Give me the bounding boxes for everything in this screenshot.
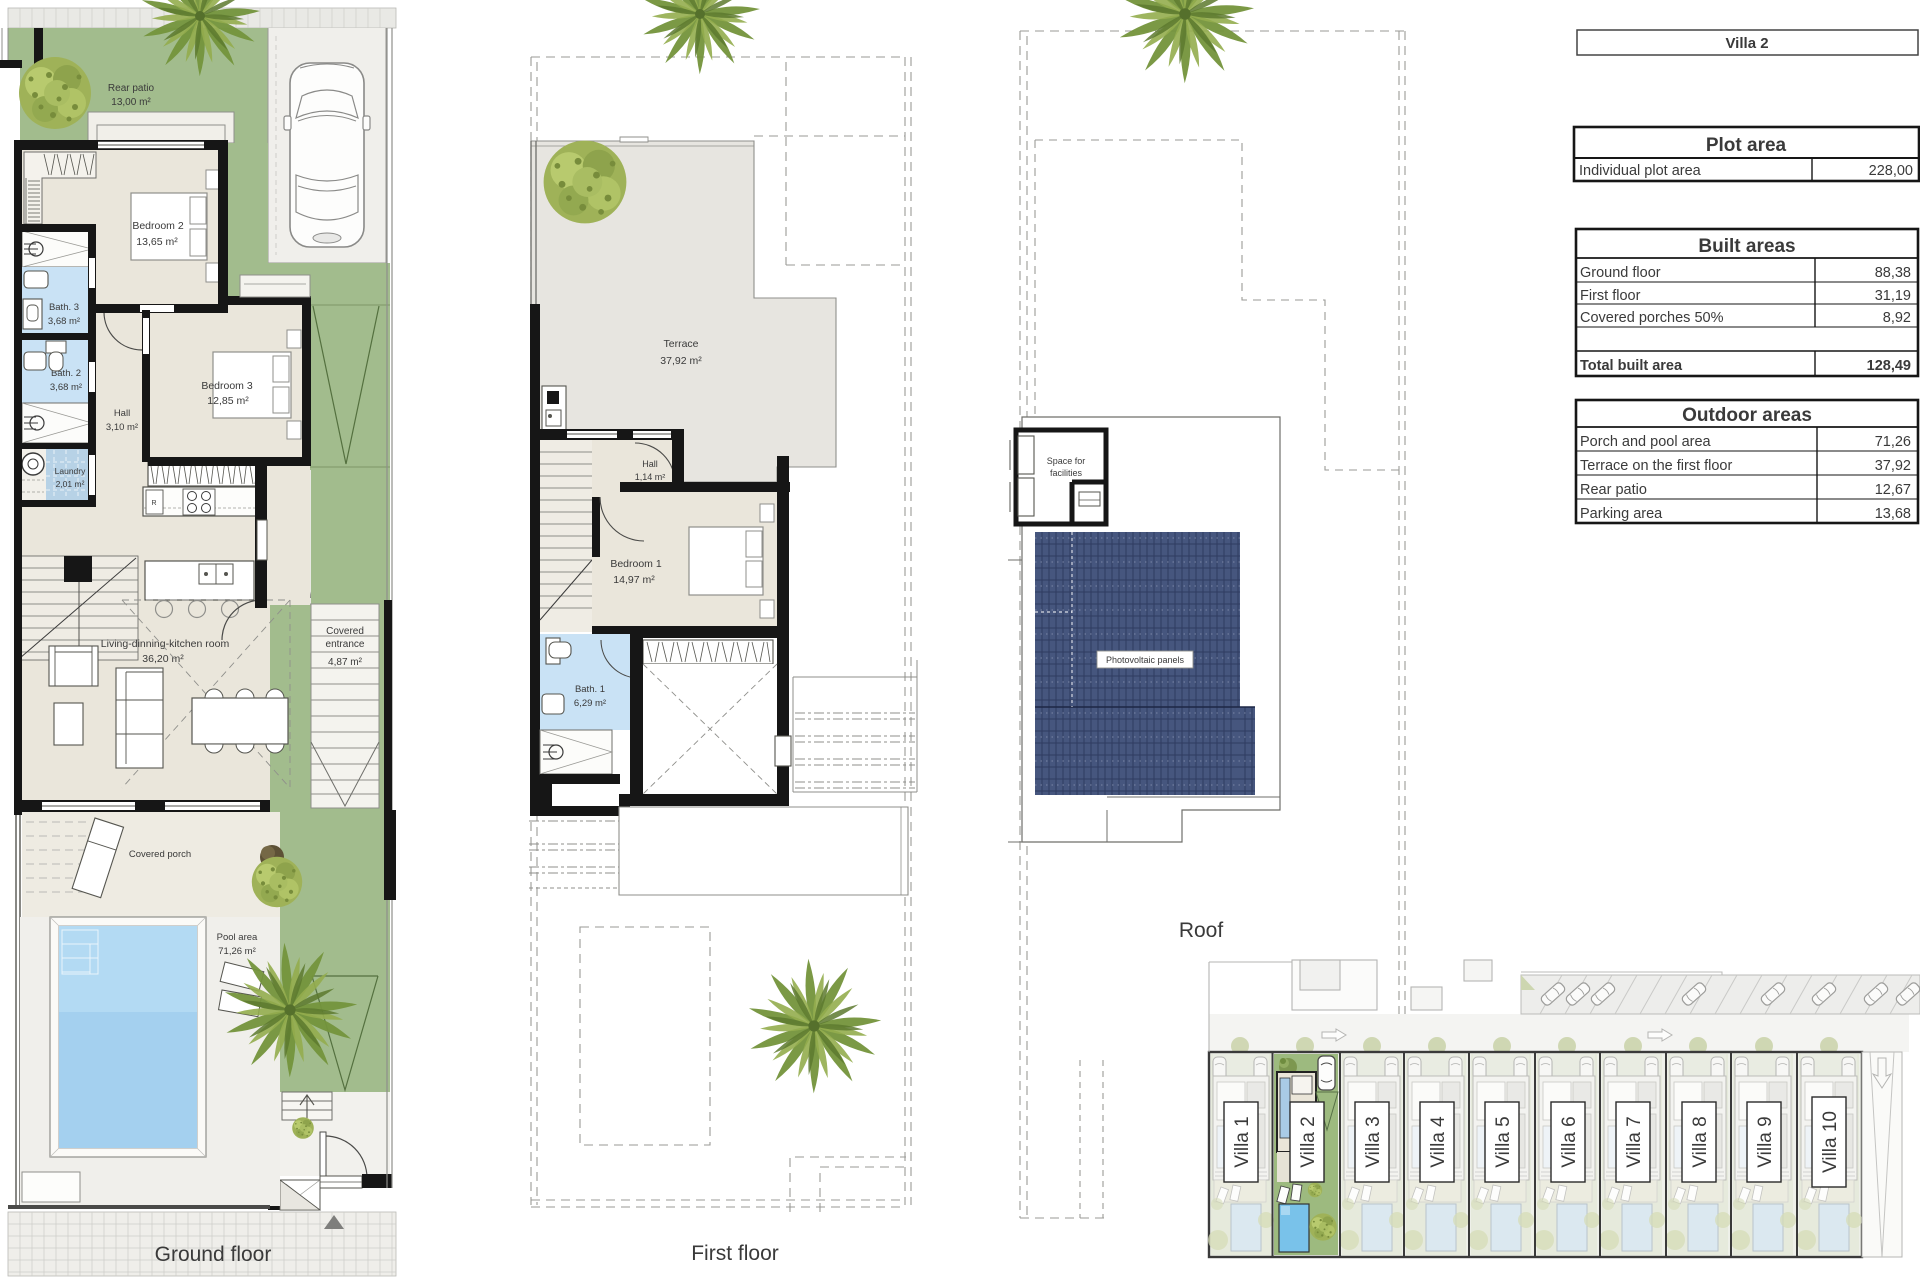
svg-text:Pool area: Pool area	[217, 932, 258, 943]
svg-text:Ground floor: Ground floor	[1580, 265, 1661, 281]
svg-text:71,26: 71,26	[1875, 434, 1911, 450]
svg-text:Villa 8: Villa 8	[1690, 1116, 1711, 1167]
svg-text:Hall: Hall	[114, 408, 130, 419]
svg-text:Villa 7: Villa 7	[1624, 1116, 1645, 1167]
svg-text:Covered porches 50%: Covered porches 50%	[1580, 310, 1724, 326]
svg-text:Rear patio: Rear patio	[1580, 482, 1647, 498]
svg-text:Outdoor areas: Outdoor areas	[1682, 405, 1812, 426]
svg-text:Villa 6: Villa 6	[1559, 1116, 1580, 1167]
svg-text:Terrace on the first floor: Terrace on the first floor	[1580, 458, 1732, 474]
svg-text:Hall: Hall	[642, 459, 658, 469]
svg-text:Built areas: Built areas	[1698, 236, 1795, 257]
svg-text:Villa 4: Villa 4	[1428, 1116, 1449, 1168]
svg-text:Roof: Roof	[1179, 919, 1224, 942]
svg-text:Porch and pool area: Porch and pool area	[1580, 434, 1712, 450]
svg-text:Total built area: Total built area	[1580, 358, 1683, 374]
svg-text:13,65 m²: 13,65 m²	[136, 236, 178, 248]
svg-text:Space for: Space for	[1047, 456, 1086, 466]
svg-text:6,29 m²: 6,29 m²	[574, 698, 606, 709]
svg-text:37,92: 37,92	[1875, 458, 1911, 474]
svg-text:Villa 3: Villa 3	[1363, 1116, 1384, 1167]
svg-text:Covered: Covered	[326, 626, 364, 637]
svg-text:13,00 m²: 13,00 m²	[111, 97, 151, 108]
svg-text:128,49: 128,49	[1867, 358, 1911, 374]
svg-text:Parking area: Parking area	[1580, 506, 1663, 522]
svg-text:facilities: facilities	[1050, 468, 1083, 478]
svg-text:3,68 m²: 3,68 m²	[48, 316, 80, 327]
svg-text:4,87 m²: 4,87 m²	[328, 657, 363, 668]
svg-text:Individual plot area: Individual plot area	[1579, 163, 1702, 179]
svg-text:Covered porch: Covered porch	[129, 849, 191, 860]
svg-text:Villa 5: Villa 5	[1493, 1116, 1514, 1167]
svg-text:Bath. 1: Bath. 1	[575, 684, 605, 695]
svg-text:228,00: 228,00	[1869, 163, 1913, 179]
svg-text:1,14 m²: 1,14 m²	[635, 472, 666, 482]
svg-text:Villa 10: Villa 10	[1820, 1111, 1841, 1173]
svg-text:entrance: entrance	[326, 639, 365, 650]
svg-text:First floor: First floor	[691, 1242, 779, 1265]
svg-text:12,85 m²: 12,85 m²	[207, 395, 249, 407]
svg-text:13,68: 13,68	[1875, 506, 1911, 522]
svg-text:First floor: First floor	[1580, 288, 1641, 304]
svg-text:14,97 m²: 14,97 m²	[613, 574, 655, 586]
svg-text:Terrace: Terrace	[663, 338, 698, 350]
svg-text:8,92: 8,92	[1883, 310, 1911, 326]
svg-text:37,92 m²: 37,92 m²	[660, 355, 702, 367]
svg-text:Bedroom 1: Bedroom 1	[610, 558, 662, 570]
svg-text:Rear patio: Rear patio	[108, 83, 155, 94]
svg-text:Villa 2: Villa 2	[1298, 1116, 1319, 1167]
svg-text:Villa 1: Villa 1	[1232, 1116, 1253, 1167]
svg-text:Laundry: Laundry	[55, 466, 86, 476]
svg-text:88,38: 88,38	[1875, 265, 1911, 281]
svg-text:2,01 m²: 2,01 m²	[56, 479, 85, 489]
svg-text:Photovoltaic panels: Photovoltaic panels	[1106, 655, 1185, 665]
svg-text:Plot area: Plot area	[1706, 135, 1787, 156]
svg-text:Ground floor: Ground floor	[155, 1243, 272, 1266]
svg-text:71,26 m²: 71,26 m²	[218, 946, 256, 957]
svg-text:12,67: 12,67	[1875, 482, 1911, 498]
svg-text:Bedroom 2: Bedroom 2	[132, 220, 184, 232]
svg-text:31,19: 31,19	[1875, 288, 1911, 304]
svg-text:Villa 9: Villa 9	[1755, 1116, 1776, 1167]
svg-text:3,10 m²: 3,10 m²	[106, 422, 138, 433]
svg-text:Villa 2: Villa 2	[1725, 35, 1768, 52]
svg-text:3,68 m²: 3,68 m²	[50, 382, 82, 393]
svg-text:Bath. 3: Bath. 3	[49, 302, 79, 313]
svg-text:R: R	[151, 500, 156, 507]
svg-text:Bedroom 3: Bedroom 3	[201, 380, 253, 392]
